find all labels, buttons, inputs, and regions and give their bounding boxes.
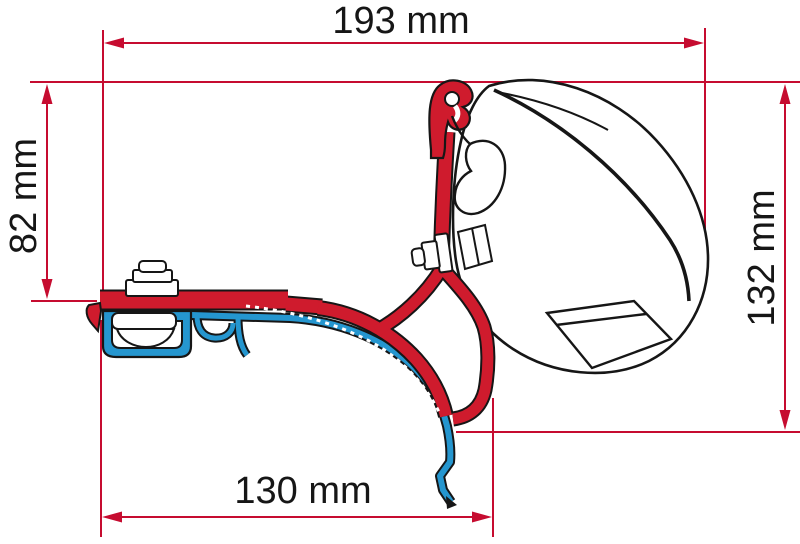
pivot-bolt-cap xyxy=(411,248,425,267)
hook-eye xyxy=(445,92,459,106)
dimension-label-left: 82 mm xyxy=(3,138,45,254)
arrow-right-up xyxy=(780,84,791,104)
kedar-insert-bar xyxy=(112,313,176,329)
dimension-label-top: 193 mm xyxy=(332,0,469,42)
technical-diagram-page: 193 mm 82 mm 132 mm 130 mm xyxy=(0,0,800,544)
awning-adapter-dimension-diagram: 193 mm 82 mm 132 mm 130 mm xyxy=(0,0,800,544)
foot-left-tab xyxy=(87,303,101,331)
arrow-bottom-right xyxy=(472,512,492,523)
arrow-bottom-left xyxy=(102,512,122,523)
arrow-left-up xyxy=(42,84,53,104)
dimension-label-right: 132 mm xyxy=(741,189,783,326)
pivot-bolt-left xyxy=(410,233,453,276)
arrow-left-down xyxy=(42,279,53,299)
foot-knob-cap xyxy=(139,261,166,272)
foot-step xyxy=(286,304,322,307)
arrow-top-left xyxy=(104,38,124,49)
arrow-right-down xyxy=(780,410,791,430)
dimension-label-bottom: 130 mm xyxy=(234,470,371,512)
arrow-top-right xyxy=(684,38,704,49)
